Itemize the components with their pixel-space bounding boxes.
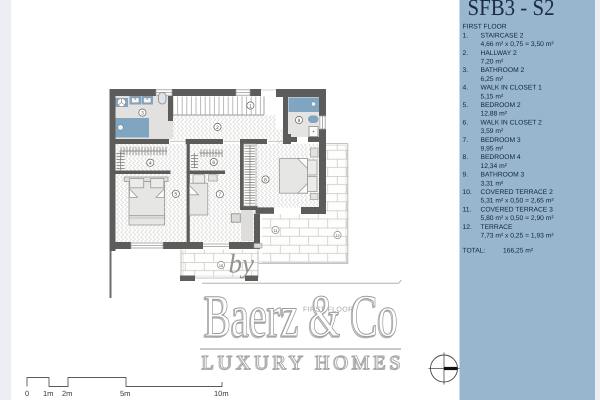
svg-text:10m: 10m <box>214 389 229 398</box>
svg-text:5,15 m²: 5,15 m² <box>481 93 504 100</box>
svg-text:3.: 3. <box>463 67 469 74</box>
svg-text:BATHROOM 3: BATHROOM 3 <box>481 172 525 179</box>
svg-text:BEDROOM 3: BEDROOM 3 <box>481 137 521 144</box>
svg-text:2.: 2. <box>463 50 469 57</box>
svg-text:3,31 m²: 3,31 m² <box>481 180 504 187</box>
svg-text:2: 2 <box>216 125 219 131</box>
svg-text:12.: 12. <box>463 224 472 231</box>
svg-text:8: 8 <box>264 177 267 183</box>
svg-text:0: 0 <box>25 389 29 398</box>
svg-text:1: 1 <box>249 103 252 109</box>
svg-text:by: by <box>229 249 255 279</box>
svg-text:WALK IN CLOSET 1: WALK IN CLOSET 1 <box>481 85 543 92</box>
svg-text:5,31 m² x 0,50 = 2,65 m²: 5,31 m² x 0,50 = 2,65 m² <box>481 198 555 205</box>
svg-text:7,20 m²: 7,20 m² <box>481 59 504 66</box>
svg-text:7.: 7. <box>463 137 469 144</box>
svg-text:FIRST FLOOR: FIRST FLOOR <box>463 24 507 31</box>
svg-text:3,59 m²: 3,59 m² <box>481 128 504 135</box>
svg-text:6,25 m²: 6,25 m² <box>481 76 504 83</box>
svg-text:COVERED TERRACE 2: COVERED TERRACE 2 <box>481 189 554 196</box>
svg-text:4,66 m² x 0,75 = 3,50 m²: 4,66 m² x 0,75 = 3,50 m² <box>481 41 555 48</box>
svg-text:11.: 11. <box>463 206 472 213</box>
svg-text:5: 5 <box>174 192 177 198</box>
svg-text:11: 11 <box>274 229 278 233</box>
svg-text:TOTAL:: TOTAL: <box>463 248 486 255</box>
svg-text:BEDROOM 4: BEDROOM 4 <box>481 154 521 161</box>
svg-text:5.: 5. <box>463 102 469 109</box>
svg-text:4: 4 <box>149 161 152 167</box>
svg-text:STAIRCASE 2: STAIRCASE 2 <box>481 32 524 39</box>
svg-text:2m: 2m <box>62 389 72 398</box>
svg-text:12,34 m²: 12,34 m² <box>481 163 508 170</box>
svg-text:10: 10 <box>219 264 223 268</box>
svg-text:1m: 1m <box>43 389 53 398</box>
svg-text:8.: 8. <box>463 154 469 161</box>
svg-text:6: 6 <box>212 160 215 166</box>
svg-text:166,25 m²: 166,25 m² <box>503 248 534 255</box>
svg-text:HALLWAY 2: HALLWAY 2 <box>481 50 517 57</box>
svg-text:COVERED TERRACE 3: COVERED TERRACE 3 <box>481 206 554 213</box>
svg-text:TERRACE: TERRACE <box>481 224 513 231</box>
svg-text:3: 3 <box>141 110 144 116</box>
svg-text:WALK IN CLOSET 2: WALK IN CLOSET 2 <box>481 119 543 126</box>
svg-text:BEDROOM 2: BEDROOM 2 <box>481 102 521 109</box>
svg-text:10.: 10. <box>463 189 472 196</box>
svg-text:12: 12 <box>335 234 339 238</box>
svg-text:9,95 m²: 9,95 m² <box>481 146 504 153</box>
svg-text:BATHROOM 2: BATHROOM 2 <box>481 67 525 74</box>
svg-text:SFB3 - S2: SFB3 - S2 <box>468 0 555 20</box>
svg-text:5m: 5m <box>120 389 130 398</box>
svg-text:4.: 4. <box>463 85 469 92</box>
svg-text:7,73 m² x 0,25 = 1,93 m²: 7,73 m² x 0,25 = 1,93 m² <box>481 233 555 240</box>
svg-text:Baerz & Co: Baerz & Co <box>204 283 398 349</box>
svg-text:7: 7 <box>218 192 221 198</box>
svg-text:9: 9 <box>298 118 301 124</box>
svg-text:5,80 m² x 0,50 = 2,90 m²: 5,80 m² x 0,50 = 2,90 m² <box>481 215 555 222</box>
svg-text:6.: 6. <box>463 119 469 126</box>
svg-text:9.: 9. <box>463 172 469 179</box>
svg-text:1.: 1. <box>463 32 469 39</box>
svg-text:12,88 m²: 12,88 m² <box>481 111 508 118</box>
svg-text:FIRST FLOOR: FIRST FLOOR <box>303 307 354 314</box>
